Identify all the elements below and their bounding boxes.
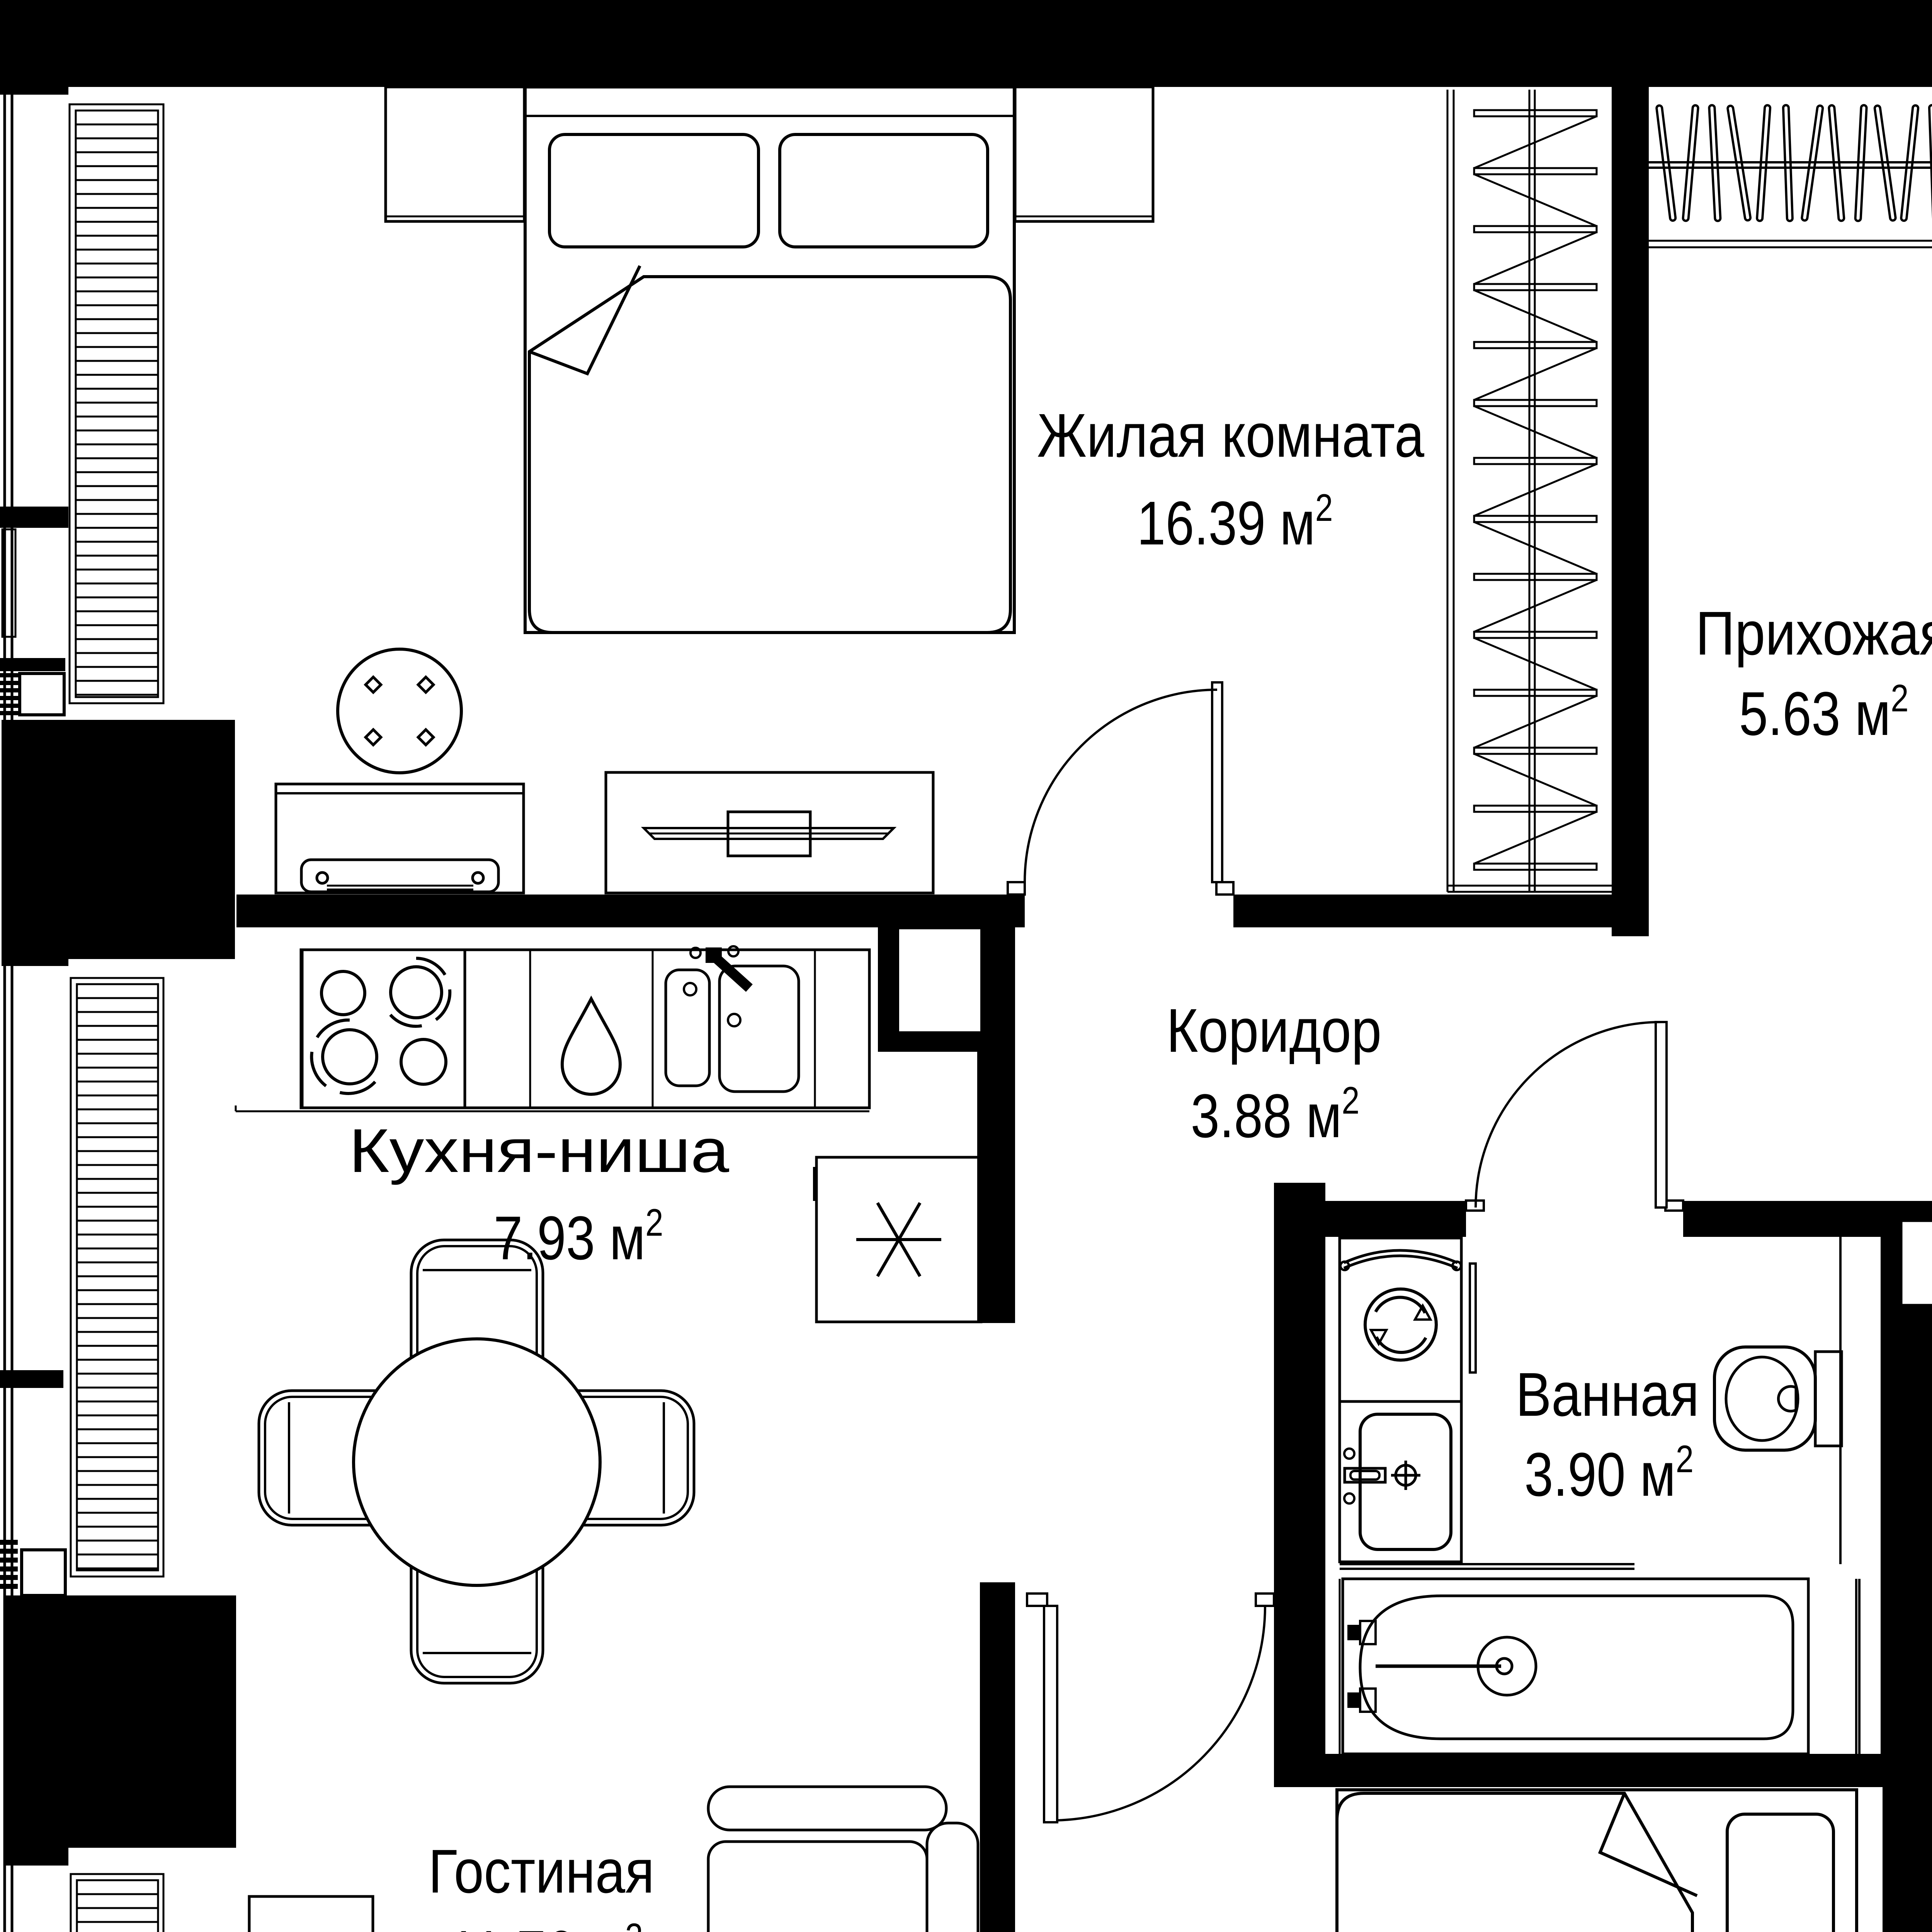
svg-text:Прихожая: Прихожая (1696, 599, 1932, 668)
svg-text:3.88 м2: 3.88 м2 (1191, 1079, 1360, 1150)
svg-text:Ванная: Ванная (1516, 1360, 1699, 1429)
svg-text:Коридор: Коридор (1167, 996, 1382, 1065)
svg-text:Кухня-ниша: Кухня-ниша (349, 1116, 729, 1185)
svg-text:Гостиная: Гостиная (429, 1837, 655, 1906)
svg-text:16.39 м2: 16.39 м2 (1137, 486, 1333, 558)
svg-text:11.76 м2: 11.76 м2 (448, 1915, 643, 1932)
svg-text:3.90 м2: 3.90 м2 (1524, 1437, 1694, 1509)
svg-text:Жилая комната: Жилая комната (1037, 401, 1424, 470)
svg-text:5.63 м2: 5.63 м2 (1739, 677, 1909, 748)
svg-text:7.93 м2: 7.93 м2 (494, 1201, 663, 1272)
